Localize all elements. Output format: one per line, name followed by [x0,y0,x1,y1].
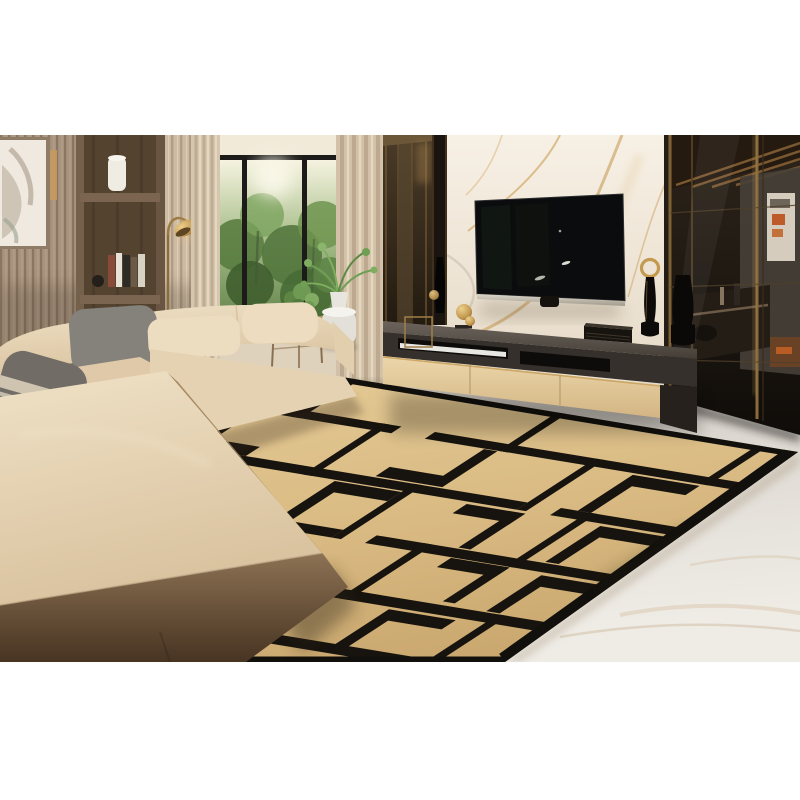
television [475,194,625,317]
shelf-lamp [108,155,126,191]
screenshot-canvas [0,0,800,800]
bronze-cabinet [383,135,432,329]
framed-artwork [0,137,50,249]
tv-camera [540,296,559,307]
living-room-photo [0,135,800,662]
window [212,155,348,325]
pillow-beige-right [241,302,318,345]
poster [767,193,795,261]
black-floor-vase [671,275,695,346]
